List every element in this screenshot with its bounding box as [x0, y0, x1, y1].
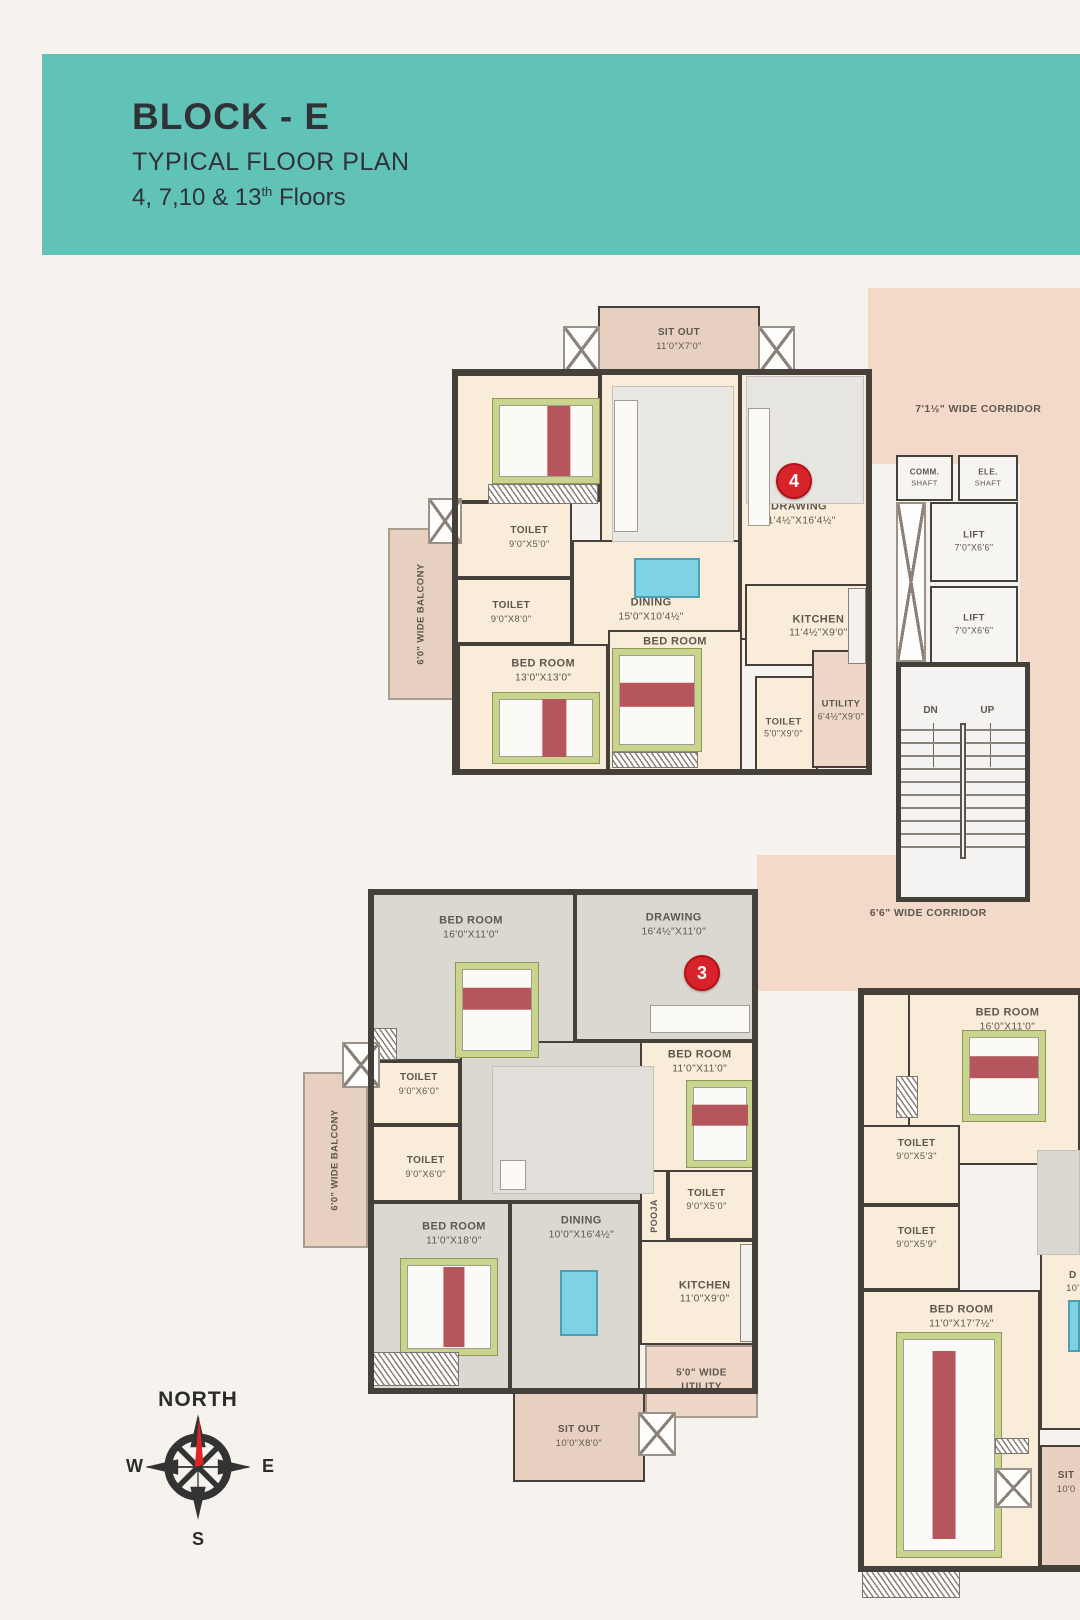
- dining-partial-right-label: D: [1066, 1269, 1079, 1283]
- window-box: [342, 1042, 380, 1088]
- bedroom-2-unit4-dims: 13'0"X13'0": [511, 671, 575, 685]
- dining-partial-right-dims: 10': [1066, 1282, 1079, 1295]
- bedroom-1-unit3-label: BED ROOM: [439, 913, 503, 928]
- toilet-3-unit4-label: TOILET: [764, 716, 803, 729]
- wardrobe-hatch: [862, 1566, 960, 1598]
- bedroom-2-right-label: BED ROOM: [929, 1303, 994, 1318]
- wardrobe-hatch: [896, 1076, 918, 1118]
- balcony-unit4: 6'0" WIDE BALCONY: [388, 528, 455, 700]
- comm-shaft-dims: SHAFT: [910, 478, 940, 488]
- window-box: [638, 1412, 676, 1456]
- window-box: [995, 1468, 1032, 1508]
- ele-shaft-label: ELE.: [975, 468, 1001, 479]
- toilet-3-unit3-label: TOILET: [686, 1187, 727, 1201]
- balcony-unit3: 6'0" WIDE BALCONY: [303, 1072, 368, 1248]
- compass-rose-icon: [143, 1412, 253, 1522]
- bedroom-3-unit3-label: BED ROOM: [422, 1219, 486, 1234]
- toilet-1-unit4-dims: 9'0"X5'0": [509, 538, 550, 551]
- lift-2-label: LIFT: [955, 613, 994, 626]
- dining-unit3-label: DINING10'0"X16'4½": [549, 1214, 614, 1243]
- bed-bedroom2-unit3: [686, 1080, 754, 1168]
- comm-shaft-label: COMM.SHAFT: [910, 468, 940, 489]
- bed-bedroom3-unit3: [400, 1258, 498, 1356]
- bed-bedroom1-unit4-runner: [547, 406, 570, 477]
- corridor-top-label: 7'1½" WIDE CORRIDOR: [915, 402, 1041, 416]
- utility-unit3-label: 5'0" WIDE UTILITY: [662, 1367, 742, 1394]
- toilet-1-unit4: TOILET9'0"X5'0": [455, 502, 572, 578]
- toilet-3-unit4-label: TOILET5'0"X9'0": [764, 716, 803, 741]
- toilet-2-unit3-label: TOILET: [405, 1154, 446, 1168]
- bedroom-3-unit3-dims: 11'0"X18'0": [422, 1234, 486, 1248]
- sitout-partial-right-dims: 10'0: [1057, 1483, 1076, 1496]
- utility-unit3: 5'0" WIDE UTILITY: [645, 1345, 758, 1418]
- floors-line: 4, 7,10 & 13th Floors: [132, 184, 1080, 212]
- lift-2-dims: 7'0"X6'6": [955, 625, 994, 637]
- corridor-top-label: 7'1½" WIDE CORRIDOR: [915, 402, 1041, 416]
- living-partial-right: [1037, 1150, 1080, 1255]
- drawing-unit3-dims: 16'4½"X11'0": [641, 926, 706, 940]
- utility-unit4: UTILITY6'4½"X9'0": [812, 650, 870, 768]
- kitchen-unit3-dims: 11'0"X9'0": [679, 1293, 731, 1307]
- toilet-2-unit3-label: TOILET9'0"X6'0": [405, 1154, 446, 1180]
- balcony-unit4-label: 6'0" WIDE BALCONY: [415, 563, 428, 664]
- bedroom-2-right-label: BED ROOM11'0"X17'7½": [929, 1303, 994, 1332]
- bedroom-2-unit3-label: BED ROOM: [668, 1048, 732, 1063]
- bedroom-3-unit4-label: BED ROOM: [643, 634, 707, 649]
- bed-bedroom3-unit4-runner: [620, 683, 694, 707]
- ele-shaft-dims: SHAFT: [975, 478, 1001, 488]
- toilet-1-right-label: TOILET: [896, 1137, 937, 1151]
- utility-unit4-label: UTILITY: [818, 699, 865, 712]
- bed-bedroom1-right: [962, 1030, 1046, 1122]
- bed-bedroom1-unit4: [492, 398, 600, 484]
- block-title: BLOCK - E: [132, 96, 1080, 138]
- lift-2: LIFT7'0"X6'6": [930, 586, 1018, 664]
- bed-bedroom2-right-runner: [932, 1351, 955, 1539]
- sitout-partial-right: SIT10'0: [1040, 1445, 1080, 1567]
- utility-unit3-label: 5'0" WIDE UTILITY: [662, 1367, 742, 1394]
- bedroom-2-right-dims: 11'0"X17'7½": [929, 1318, 994, 1332]
- toilet-1-unit3-dims: 9'0"X6'0": [399, 1084, 440, 1097]
- staircase: DN UP: [896, 662, 1030, 902]
- lift-1-label: LIFT7'0"X6'6": [955, 530, 994, 555]
- sitout-partial-right-label: SIT10'0: [1057, 1469, 1076, 1495]
- toilet-2-right-label: TOILET9'0"X5'9": [896, 1225, 937, 1251]
- kitchen-unit4-label: KITCHEN11'4½"X9'0": [789, 612, 848, 641]
- dining-unit4-label: DINING15'0"X10'4½": [618, 596, 683, 625]
- window-box: [758, 326, 795, 374]
- utility-unit4-label: UTILITY6'4½"X9'0": [818, 699, 865, 724]
- toilet-2-right: TOILET9'0"X5'9": [862, 1205, 960, 1290]
- balcony-unit3-label: 6'0" WIDE BALCONY: [329, 1109, 342, 1210]
- bedroom-2-unit4-label: BED ROOM: [511, 656, 575, 671]
- lift-1-dims: 7'0"X6'6": [955, 542, 994, 554]
- sofa-drawing-unit3: [650, 1005, 750, 1033]
- bed-bedroom1-unit4-mattress: [499, 405, 593, 477]
- dining-partial-right-label: D10': [1066, 1269, 1079, 1295]
- toilet-3-unit3-dims: 9'0"X5'0": [686, 1200, 727, 1213]
- comm-shaft: COMM.SHAFT: [896, 455, 953, 501]
- toilet-2-unit4: TOILET9'0"X8'0": [455, 578, 572, 644]
- bed-bedroom3-unit4: [612, 648, 702, 752]
- toilet-3-unit4-dims: 5'0"X9'0": [764, 729, 803, 741]
- stairs-up-label: UP: [980, 705, 994, 716]
- corridor-mid-label: 6'6" WIDE CORRIDOR: [870, 906, 987, 920]
- lift-1: LIFT7'0"X6'6": [930, 502, 1018, 582]
- bedroom-2-unit4-label: BED ROOM13'0"X13'0": [511, 656, 575, 685]
- toilet-3-unit3: TOILET9'0"X5'0": [668, 1170, 755, 1240]
- pooja-unit3-label: POOJA: [648, 1199, 660, 1233]
- corridor-top: 7'1½" WIDE CORRIDOR: [868, 288, 1080, 464]
- toilet-1-unit3-label: TOILET: [399, 1071, 440, 1085]
- bedroom-1-unit3-dims: 16'0"X11'0": [439, 928, 503, 942]
- kitchen-unit3-label: KITCHEN: [679, 1278, 731, 1293]
- window-box: [428, 498, 462, 544]
- drawing-unit4-dims: 11'4½"X16'4½": [762, 514, 836, 528]
- toilet-1-right: TOILET9'0"X5'3": [862, 1125, 960, 1205]
- stairs-dn-label: DN: [923, 705, 937, 716]
- bed-bedroom1-unit3-mattress: [462, 969, 532, 1051]
- sitout-unit4-label: SIT OUT11'0"X7'0": [656, 326, 702, 352]
- wardrobe-hatch: [373, 1352, 459, 1386]
- toilet-1-unit3: TOILET9'0"X6'0": [371, 1061, 460, 1125]
- header-band: BLOCK - E TYPICAL FLOOR PLAN 4, 7,10 & 1…: [42, 54, 1080, 255]
- lift-2-label: LIFT7'0"X6'6": [955, 613, 994, 638]
- dining-unit3-label: DINING: [549, 1214, 614, 1229]
- floors-ordinal: th: [261, 184, 272, 199]
- floors-text: 4, 7,10 & 13: [132, 184, 261, 211]
- unit-number: 3: [697, 963, 707, 984]
- sitout-unit4-dims: 11'0"X7'0": [656, 339, 702, 352]
- sofa-drawing-unit4: [748, 408, 770, 526]
- toilet-1-unit3-label: TOILET9'0"X6'0": [399, 1071, 440, 1097]
- toilet-1-right-label: TOILET9'0"X5'3": [896, 1137, 937, 1163]
- toilet-2-unit3: TOILET9'0"X6'0": [371, 1125, 460, 1202]
- comm-shaft-label: COMM.: [910, 468, 940, 479]
- sitout-unit4: SIT OUT11'0"X7'0": [598, 306, 760, 372]
- bed-bedroom2-right: [896, 1332, 1002, 1558]
- toilet-1-unit4-label: TOILET9'0"X5'0": [509, 524, 550, 550]
- wardrobe-hatch: [488, 484, 598, 504]
- unit-number-marker: 3: [684, 955, 720, 991]
- toilet-1-right-dims: 9'0"X5'3": [896, 1150, 937, 1163]
- toilet-1-unit4-label: TOILET: [509, 524, 550, 538]
- dining-table-partial-right: [1068, 1300, 1080, 1352]
- dining-table-unit4: [634, 558, 700, 598]
- compass-south-label: S: [120, 1529, 276, 1550]
- window-box: [896, 502, 926, 662]
- dining-table-unit3: [560, 1270, 598, 1336]
- toilet-2-unit4-dims: 9'0"X8'0": [491, 613, 532, 626]
- sitout-unit3-label: SIT OUT: [556, 1423, 602, 1437]
- toilet-3-unit3-label: TOILET9'0"X5'0": [686, 1187, 727, 1213]
- unit-number-marker: 4: [776, 463, 812, 499]
- lift-1-label: LIFT: [955, 530, 994, 543]
- unit-number: 4: [789, 471, 799, 492]
- ele-shaft: ELE.SHAFT: [958, 455, 1018, 501]
- kitchen-unit4-label: KITCHEN: [789, 612, 848, 627]
- sofa-living-unit3: [500, 1160, 526, 1190]
- bed-bedroom1-right-runner: [970, 1056, 1039, 1078]
- utility-unit4-dims: 6'4½"X9'0": [818, 712, 865, 724]
- toilet-2-right-label: TOILET: [896, 1225, 937, 1239]
- sitout-unit3: SIT OUT10'0"X8'0": [513, 1390, 645, 1482]
- sitout-unit3-dims: 10'0"X8'0": [556, 1436, 602, 1449]
- bed-bedroom2-unit4-runner: [543, 699, 566, 758]
- wardrobe-hatch: [995, 1438, 1029, 1454]
- compass: NORTH W E S: [120, 1388, 276, 1540]
- balcony-unit3-label: 6'0" WIDE BALCONY: [329, 1109, 342, 1210]
- balcony-unit4-label: 6'0" WIDE BALCONY: [415, 563, 428, 664]
- bedroom-2-unit3-label: BED ROOM11'0"X11'0": [668, 1048, 732, 1077]
- toilet-2-right-dims: 9'0"X5'9": [896, 1238, 937, 1251]
- bedroom-1-unit3-label: BED ROOM16'0"X11'0": [439, 913, 503, 942]
- window-box: [563, 326, 600, 374]
- bed-bedroom2-unit3-runner: [692, 1105, 747, 1126]
- bed-bedroom1-unit3: [455, 962, 539, 1058]
- drawing-unit3-label: DRAWING16'4½"X11'0": [641, 911, 706, 940]
- toilet-2-unit4-label: TOILET9'0"X8'0": [491, 599, 532, 625]
- dining-unit4-dims: 15'0"X10'4½": [618, 610, 683, 624]
- bed-bedroom2-unit4: [492, 692, 600, 764]
- compass-west-label: W: [126, 1456, 143, 1477]
- kitchen-unit4-dims: 11'4½"X9'0": [789, 627, 848, 641]
- dining-unit3-dims: 10'0"X16'4½": [549, 1229, 614, 1243]
- floors-tail: Floors: [272, 184, 345, 211]
- toilet-2-unit4-label: TOILET: [491, 599, 532, 613]
- sitout-unit3-label: SIT OUT10'0"X8'0": [556, 1423, 602, 1449]
- pooja-unit3-label: POOJA: [648, 1199, 660, 1233]
- sofa-living-unit4: [614, 400, 638, 532]
- floor-plan-canvas: BLOCK - E TYPICAL FLOOR PLAN 4, 7,10 & 1…: [0, 0, 1080, 1620]
- kitchen-unit3-label: KITCHEN11'0"X9'0": [679, 1278, 731, 1307]
- compass-north-label: NORTH: [120, 1388, 276, 1412]
- plan-subtitle: TYPICAL FLOOR PLAN: [132, 148, 1080, 177]
- toilet-2-unit3-dims: 9'0"X6'0": [405, 1168, 446, 1181]
- sitout-partial-right-label: SIT: [1057, 1469, 1076, 1483]
- ele-shaft-label: ELE.SHAFT: [975, 468, 1001, 489]
- bedroom-3-unit3-label: BED ROOM11'0"X18'0": [422, 1219, 486, 1248]
- stair-rail: [960, 723, 966, 859]
- wardrobe-hatch: [612, 752, 698, 768]
- compass-east-label: E: [262, 1456, 274, 1477]
- kitchen-counter-unit3: [740, 1244, 756, 1342]
- bed-bedroom1-unit3-runner: [463, 987, 532, 1010]
- bed-bedroom3-unit3-runner: [443, 1267, 464, 1348]
- kitchen-counter-unit4: [848, 588, 866, 664]
- toilet-3-unit4: TOILET5'0"X9'0": [755, 676, 818, 772]
- corridor-mid-label: 6'6" WIDE CORRIDOR: [870, 906, 987, 920]
- bedroom-1-right-label: BED ROOM: [976, 1006, 1040, 1021]
- bedroom-2-unit3-dims: 11'0"X11'0": [668, 1063, 732, 1077]
- sitout-unit4-label: SIT OUT: [656, 326, 702, 340]
- drawing-unit3-label: DRAWING: [641, 911, 706, 926]
